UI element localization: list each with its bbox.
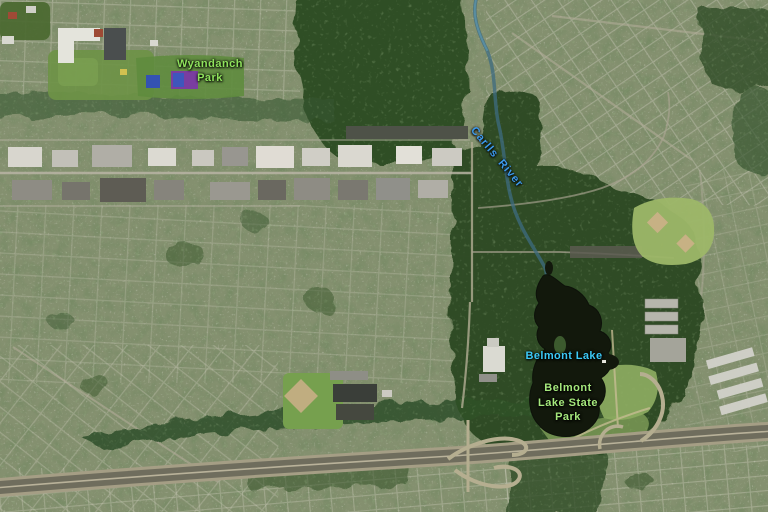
satellite-map[interactable]: Wyandanch Park Carlls River Belmont Lake… xyxy=(0,0,768,512)
hospital-building xyxy=(483,346,505,372)
wyandanch-park-grounds xyxy=(136,55,244,99)
tennis-court-blue xyxy=(146,75,160,88)
corner-school-block xyxy=(0,2,50,44)
boat-dock xyxy=(602,360,606,363)
lake-island xyxy=(554,336,566,354)
parking-lot xyxy=(650,338,686,362)
ballfields-clearing xyxy=(632,198,714,265)
aerial-imagery-layer xyxy=(0,0,768,512)
